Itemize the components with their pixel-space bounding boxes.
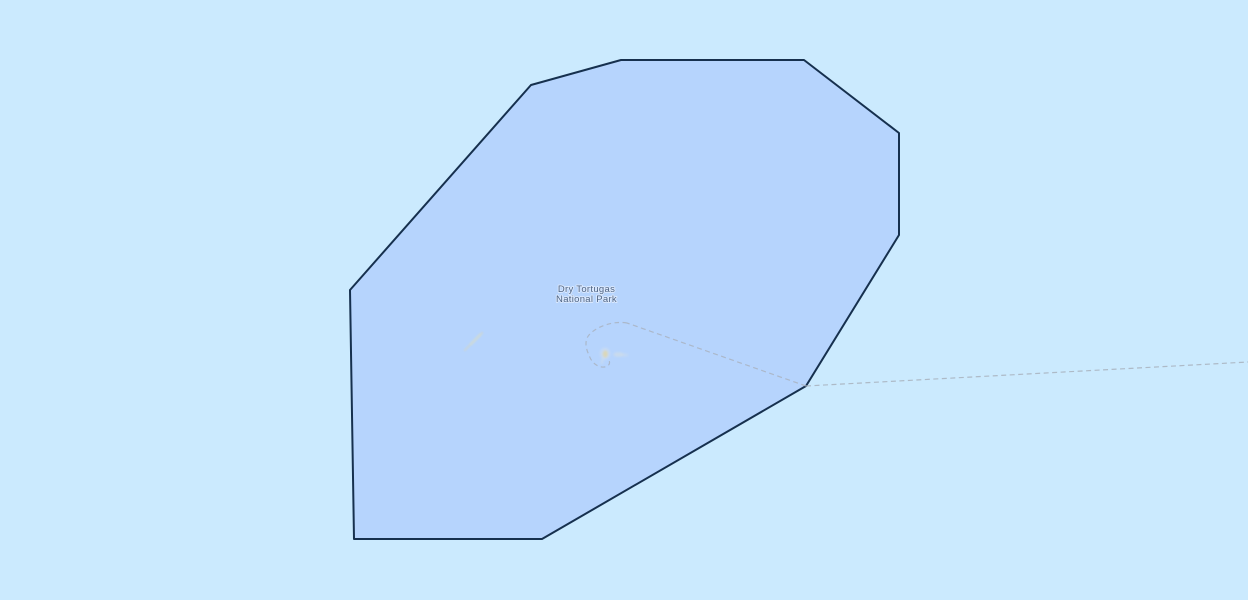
svg-text:National Park: National Park (556, 294, 617, 305)
